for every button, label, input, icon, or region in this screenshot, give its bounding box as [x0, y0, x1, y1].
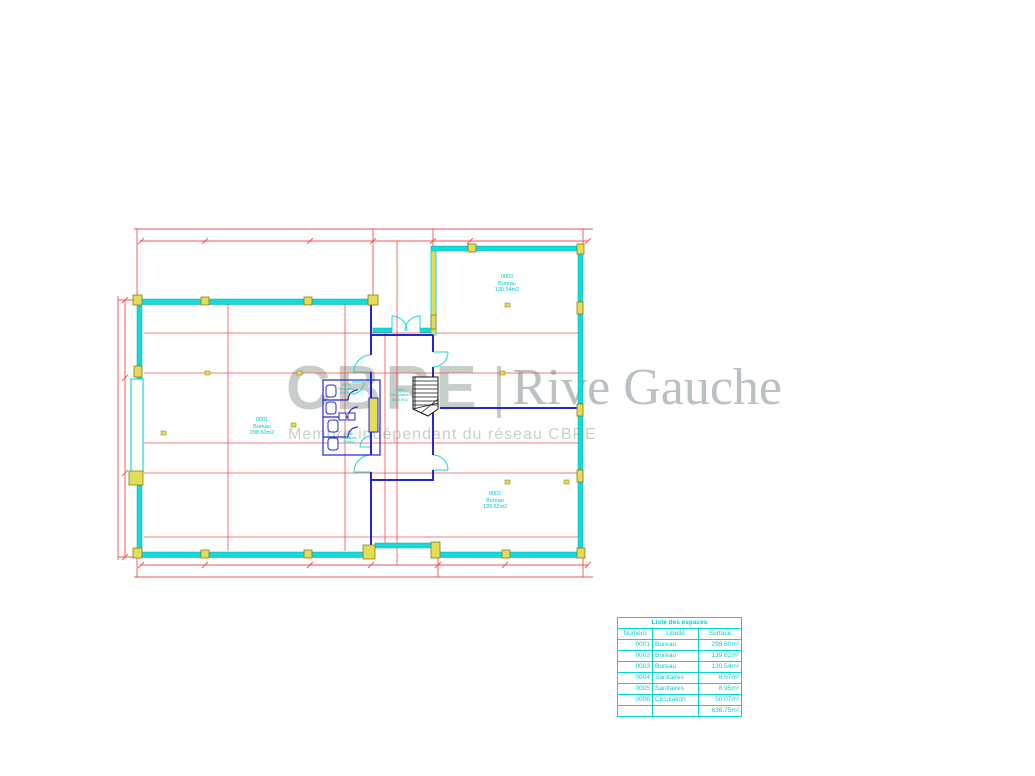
floor-plan-drawing	[0, 0, 1035, 776]
duct-shaft	[369, 398, 378, 432]
room-label-0005: 0005 Sanitaires 8.95m2	[334, 432, 364, 444]
room-label-0004: 0004 Sanitaires 8.97m2	[331, 383, 361, 395]
space-list-table: Liste des espaces Numéro Libellé Surface…	[617, 617, 742, 717]
room-label-0002: 0002 Bureau 139.62m2	[466, 491, 524, 511]
table-row: 0001 Bureau 298.60m²	[618, 639, 741, 650]
space-table-header: Numéro Libellé Surface	[618, 628, 741, 639]
col-libelle: Libellé	[653, 629, 699, 639]
table-row: 0004 Sanitaires 8.97m²	[618, 672, 741, 683]
table-row: 0006 Circulation 50.07m²	[618, 694, 741, 705]
staircase-icon	[413, 377, 438, 416]
table-total-row: 636.75m²	[618, 705, 741, 716]
ceiling-markers	[161, 303, 569, 484]
table-row: 0005 Sanitaires 8.95m²	[618, 683, 741, 694]
room-label-0003: 0003 Bureau 130.54m2	[478, 274, 536, 294]
room-label-0006: 0006 Circulation 50.07m2	[384, 388, 416, 402]
space-table-title: Liste des espaces	[618, 618, 741, 628]
table-row: 0002 Bureau 139.62m²	[618, 650, 741, 661]
room-label-0001: 0001 Bureau 298.60m2	[233, 417, 291, 437]
interior-partitions	[371, 301, 581, 552]
col-numero: Numéro	[618, 629, 653, 639]
table-row: 0003 Bureau 130.54m²	[618, 661, 741, 672]
total-surface: 636.75m²	[699, 706, 741, 716]
window-bay	[131, 379, 143, 473]
col-surface: Surface	[699, 629, 741, 639]
